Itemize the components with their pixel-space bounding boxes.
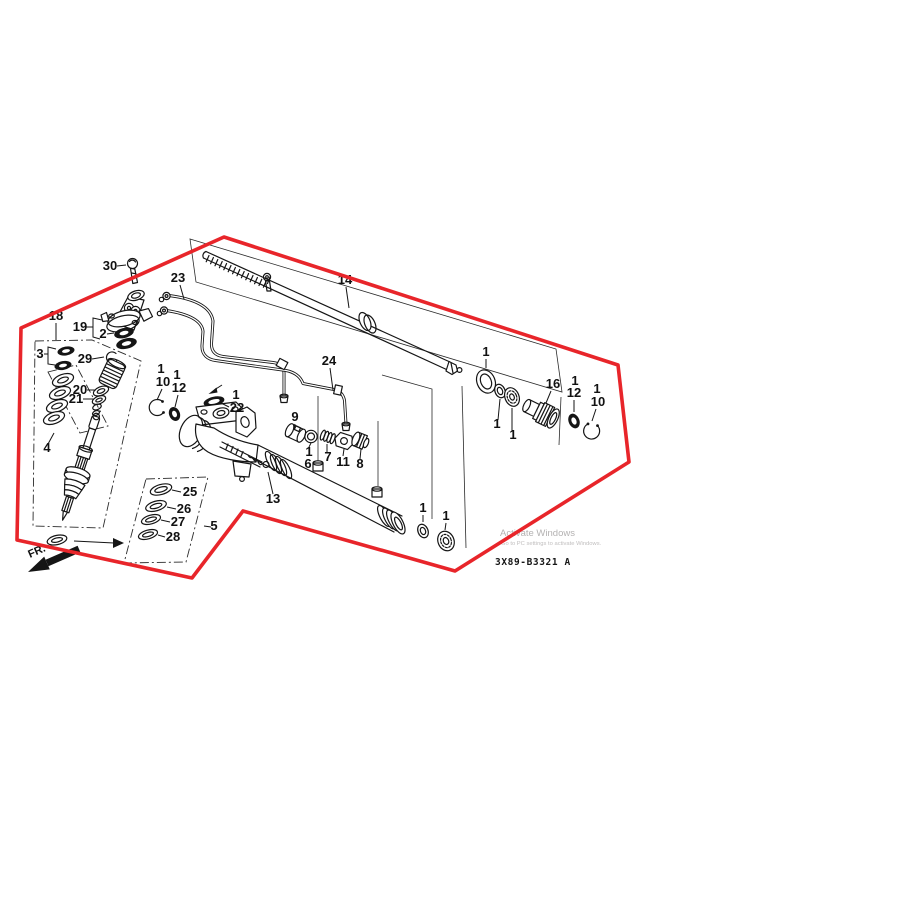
callout-7: 7 — [324, 449, 331, 464]
callout-30: 30 — [103, 258, 117, 273]
callout-1-right-c: 1 — [509, 427, 516, 442]
callout-8: 8 — [356, 456, 363, 471]
watermark: Activate Windows Go to PC settings to ac… — [500, 528, 602, 547]
callout-25: 25 — [183, 484, 197, 499]
callout-24: 24 — [322, 353, 337, 368]
callout-3: 3 — [36, 346, 43, 361]
valve-housing-16 — [519, 395, 561, 430]
steering-joint — [101, 288, 153, 351]
callout-10-left: 10 — [156, 374, 170, 389]
steering-rack-exploded-diagram: 30 23 14 18 19 2 3 29 20 21 4 1 10 1 12 … — [0, 0, 900, 900]
pinion-shaft — [51, 410, 109, 524]
callout-21: 21 — [69, 391, 83, 406]
callout-1-tube-a: 1 — [419, 500, 426, 515]
callout-10-right: 10 — [591, 394, 605, 409]
callout-5: 5 — [210, 518, 217, 533]
snap-ring-washer-left — [149, 400, 182, 423]
parts-diagram-page: 30 23 14 18 19 2 3 29 20 21 4 1 10 1 12 … — [0, 0, 900, 900]
callout-29: 29 — [78, 351, 92, 366]
callout-22: 22 — [230, 400, 244, 415]
callout-2: 2 — [99, 326, 106, 341]
callout-1-tube-b: 1 — [442, 508, 449, 523]
callout-16: 16 — [546, 376, 560, 391]
callout-23: 23 — [171, 270, 185, 285]
callout-1-right-b: 1 — [493, 416, 500, 431]
callout-12-left: 12 — [172, 380, 186, 395]
callout-9: 9 — [291, 409, 298, 424]
callout-19: 19 — [73, 319, 87, 334]
callout-4: 4 — [43, 440, 51, 455]
callout-27: 27 — [171, 514, 185, 529]
callout-28: 28 — [166, 529, 180, 544]
callout-11: 11 — [336, 454, 350, 469]
drawing-code: 3X89-B3321 A — [495, 557, 571, 568]
callout-12-right: 12 — [567, 385, 581, 400]
valve-end-parts — [473, 367, 599, 439]
tube-end-bearing-set — [416, 523, 457, 554]
callout-1-right-a: 1 — [482, 344, 489, 359]
watermark-line2: Go to PC settings to activate Windows. — [501, 541, 602, 547]
pinion-valve-group — [42, 345, 127, 548]
callout-6: 6 — [304, 456, 311, 471]
callout-labels: 30 23 14 18 19 2 3 29 20 21 4 1 10 1 12 … — [36, 258, 605, 544]
callout-13: 13 — [266, 491, 280, 506]
